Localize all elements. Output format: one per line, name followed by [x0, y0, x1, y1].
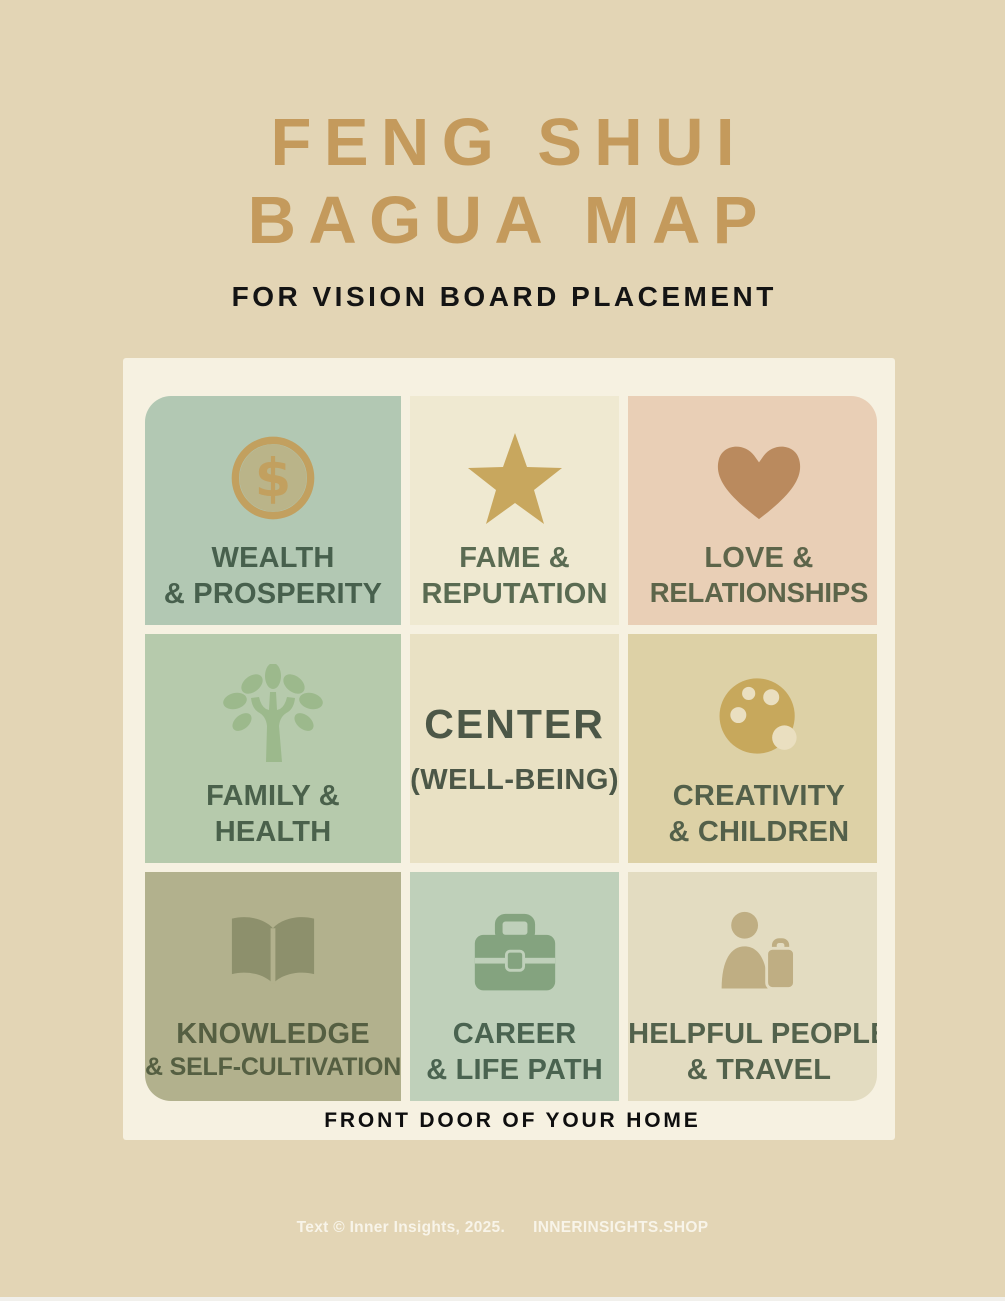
tree-icon	[223, 664, 323, 768]
bottom-edge-strip	[0, 1297, 1005, 1301]
cell-label-line: & LIFE PATH	[426, 1052, 603, 1088]
dollar-coin-icon: $	[230, 426, 316, 530]
cell-label-line: & TRAVEL	[687, 1052, 831, 1088]
front-door-label: FRONT DOOR OF YOUR HOME	[145, 1101, 877, 1141]
bagua-cell-family-health: FAMILY & HEALTH	[145, 634, 401, 863]
page-title-line2: BAGUA MAP	[0, 182, 1005, 260]
footer: Text © Inner Insights, 2025. INNERINSIGH…	[0, 1219, 1005, 1237]
cell-label-line: RELATIONSHIPS	[650, 576, 868, 610]
bagua-cell-love-relationships: LOVE & RELATIONSHIPS	[628, 396, 877, 625]
cell-label-line: HELPFUL PEOPLE	[628, 1016, 877, 1052]
cell-label-line: KNOWLEDGE	[176, 1016, 370, 1052]
cell-label: LOVE & RELATIONSHIPS	[650, 540, 868, 611]
bagua-map-card: $ WEALTH & PROSPERITY FAME & REPUTATIO	[123, 358, 895, 1140]
cell-label: FAME & REPUTATION	[421, 540, 607, 613]
svg-text:$: $	[255, 448, 291, 509]
cell-label-line: REPUTATION	[421, 576, 607, 612]
page-subtitle: FOR VISION BOARD PLACEMENT	[0, 281, 1005, 313]
paint-palette-icon	[712, 664, 806, 768]
bagua-cell-fame-reputation: FAME & REPUTATION	[410, 396, 619, 625]
bagua-cell-wealth-prosperity: $ WEALTH & PROSPERITY	[145, 396, 401, 625]
cell-label: KNOWLEDGE & SELF-CULTIVATION	[145, 1016, 401, 1084]
page-title: FENG SHUI BAGUA MAP	[0, 104, 1005, 261]
bagua-cell-center-well-being: CENTER (WELL-BEING)	[410, 634, 619, 863]
cell-label-line: LOVE &	[704, 540, 813, 576]
footer-website: INNERINSIGHTS.SHOP	[533, 1219, 708, 1237]
cell-label: CREATIVITY & CHILDREN	[668, 778, 849, 851]
heart-icon	[710, 426, 808, 530]
cell-label-line: FAMILY &	[206, 778, 340, 814]
person-luggage-icon	[711, 902, 807, 1006]
star-icon	[465, 426, 565, 530]
cell-label: CAREER & LIFE PATH	[426, 1016, 603, 1089]
cell-label-line: WEALTH	[212, 540, 335, 576]
cell-label: WEALTH & PROSPERITY	[164, 540, 382, 613]
poster-page: FENG SHUI BAGUA MAP FOR VISION BOARD PLA…	[0, 0, 1005, 1301]
bagua-cell-knowledge-self-cultivation: KNOWLEDGE & SELF-CULTIVATION	[145, 872, 401, 1101]
bagua-grid: $ WEALTH & PROSPERITY FAME & REPUTATIO	[145, 396, 877, 1101]
cell-label-line: CAREER	[453, 1016, 577, 1052]
cell-label: HELPFUL PEOPLE & TRAVEL	[628, 1016, 877, 1089]
cell-label-line: CREATIVITY	[673, 778, 845, 814]
bagua-cell-helpful-people-travel: HELPFUL PEOPLE & TRAVEL	[628, 872, 877, 1101]
bagua-cell-creativity-children: CREATIVITY & CHILDREN	[628, 634, 877, 863]
page-title-line1: FENG SHUI	[0, 104, 1005, 182]
cell-label: FAMILY & HEALTH	[206, 778, 340, 851]
cell-label-line: CENTER	[424, 699, 605, 750]
cell-label-line: (WELL-BEING)	[410, 762, 619, 798]
cell-label-line: FAME &	[459, 540, 570, 576]
cell-label-line: HEALTH	[215, 814, 332, 850]
cell-label: CENTER (WELL-BEING)	[410, 699, 619, 799]
cell-label-line: & PROSPERITY	[164, 576, 382, 612]
briefcase-icon	[467, 902, 563, 1006]
cell-label-line: & SELF-CULTIVATION	[145, 1052, 401, 1083]
bagua-cell-career-life-path: CAREER & LIFE PATH	[410, 872, 619, 1101]
cell-label-line: & CHILDREN	[668, 814, 849, 850]
open-book-icon	[220, 902, 326, 1006]
footer-copyright: Text © Inner Insights, 2025.	[297, 1219, 505, 1237]
